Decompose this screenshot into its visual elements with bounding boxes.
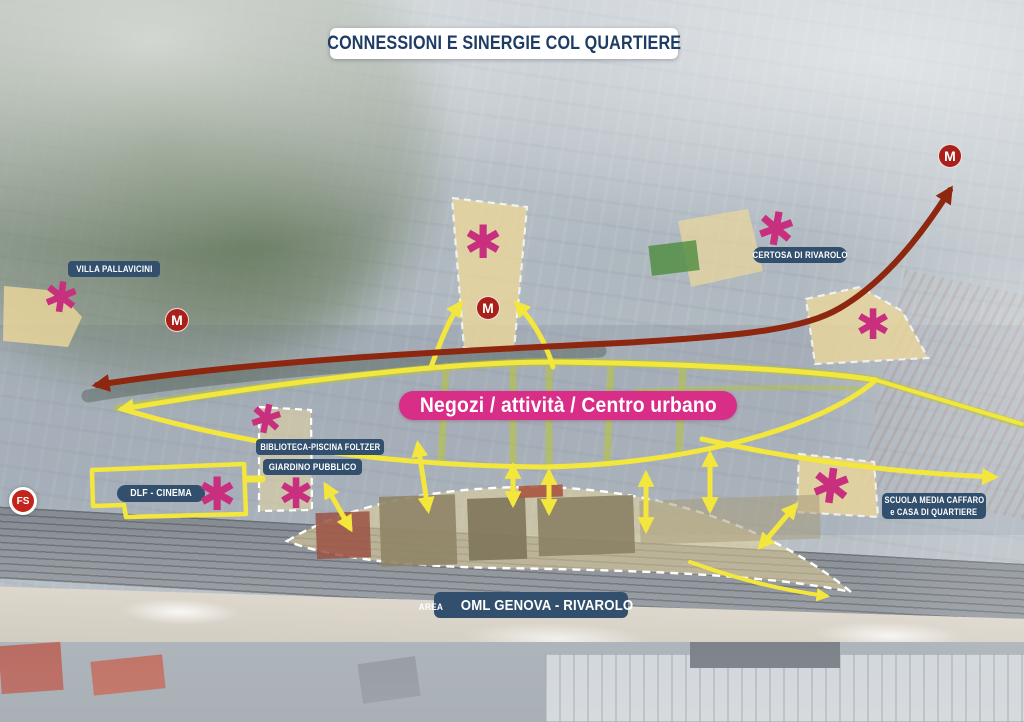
poi-asterisk-icon: ✱ <box>41 275 82 321</box>
label-scuola-line2: e CASA DI QUARTIERE <box>891 506 978 518</box>
label-villa-pallavicini-text: VILLA PALLAVICINI <box>76 264 152 274</box>
label-area-oml-prefix: AREA <box>419 602 443 613</box>
connessioni-sinergie-map: CONNESSIONI E SINERGIE COL QUARTIERE Neg… <box>0 0 1024 722</box>
poi-asterisk-icon: ✱ <box>464 219 503 265</box>
poi-asterisk-icon: ✱ <box>278 473 313 515</box>
poi-asterisk-icon: ✱ <box>198 471 237 517</box>
loop-right-extension <box>876 380 1022 424</box>
metro-station-marker: M <box>938 144 962 168</box>
label-dlf-cinema-text: DLF - CINEMA <box>130 488 192 499</box>
label-scuola-media-caffaro: SCUOLA MEDIA CAFFARO e CASA DI QUARTIERE <box>882 493 986 519</box>
metro-m-text: M <box>171 312 183 328</box>
metro-m-text: M <box>944 148 956 164</box>
metro-m-text: M <box>482 300 494 316</box>
poi-asterisk-icon: ✱ <box>753 203 799 255</box>
metro-station-marker: M <box>165 308 189 332</box>
label-scuola-line1: SCUOLA MEDIA CAFFARO <box>884 494 984 506</box>
label-area-oml: AREA OML GENOVA - RIVAROLO <box>434 592 628 618</box>
soccer-pitch <box>648 240 699 276</box>
poi-asterisk-icon: ✱ <box>855 304 890 346</box>
label-area-oml-name: OML GENOVA - RIVAROLO <box>461 597 634 614</box>
fs-railway-marker: FS <box>9 487 37 515</box>
page-title-text: CONNESSIONI E SINERGIE COL QUARTIERE <box>327 33 681 55</box>
negozi-attivita-text: Negozi / attività / Centro urbano <box>420 394 717 418</box>
negozi-attivita-banner: Negozi / attività / Centro urbano <box>399 391 737 420</box>
label-villa-pallavicini: VILLA PALLAVICINI <box>68 261 160 277</box>
metro-station-marker: M <box>476 296 500 320</box>
page-title: CONNESSIONI E SINERGIE COL QUARTIERE <box>330 28 678 59</box>
label-dlf-cinema: DLF - CINEMA <box>117 485 205 502</box>
fs-text: FS <box>17 496 30 507</box>
poi-asterisk-icon: ✱ <box>808 460 855 513</box>
